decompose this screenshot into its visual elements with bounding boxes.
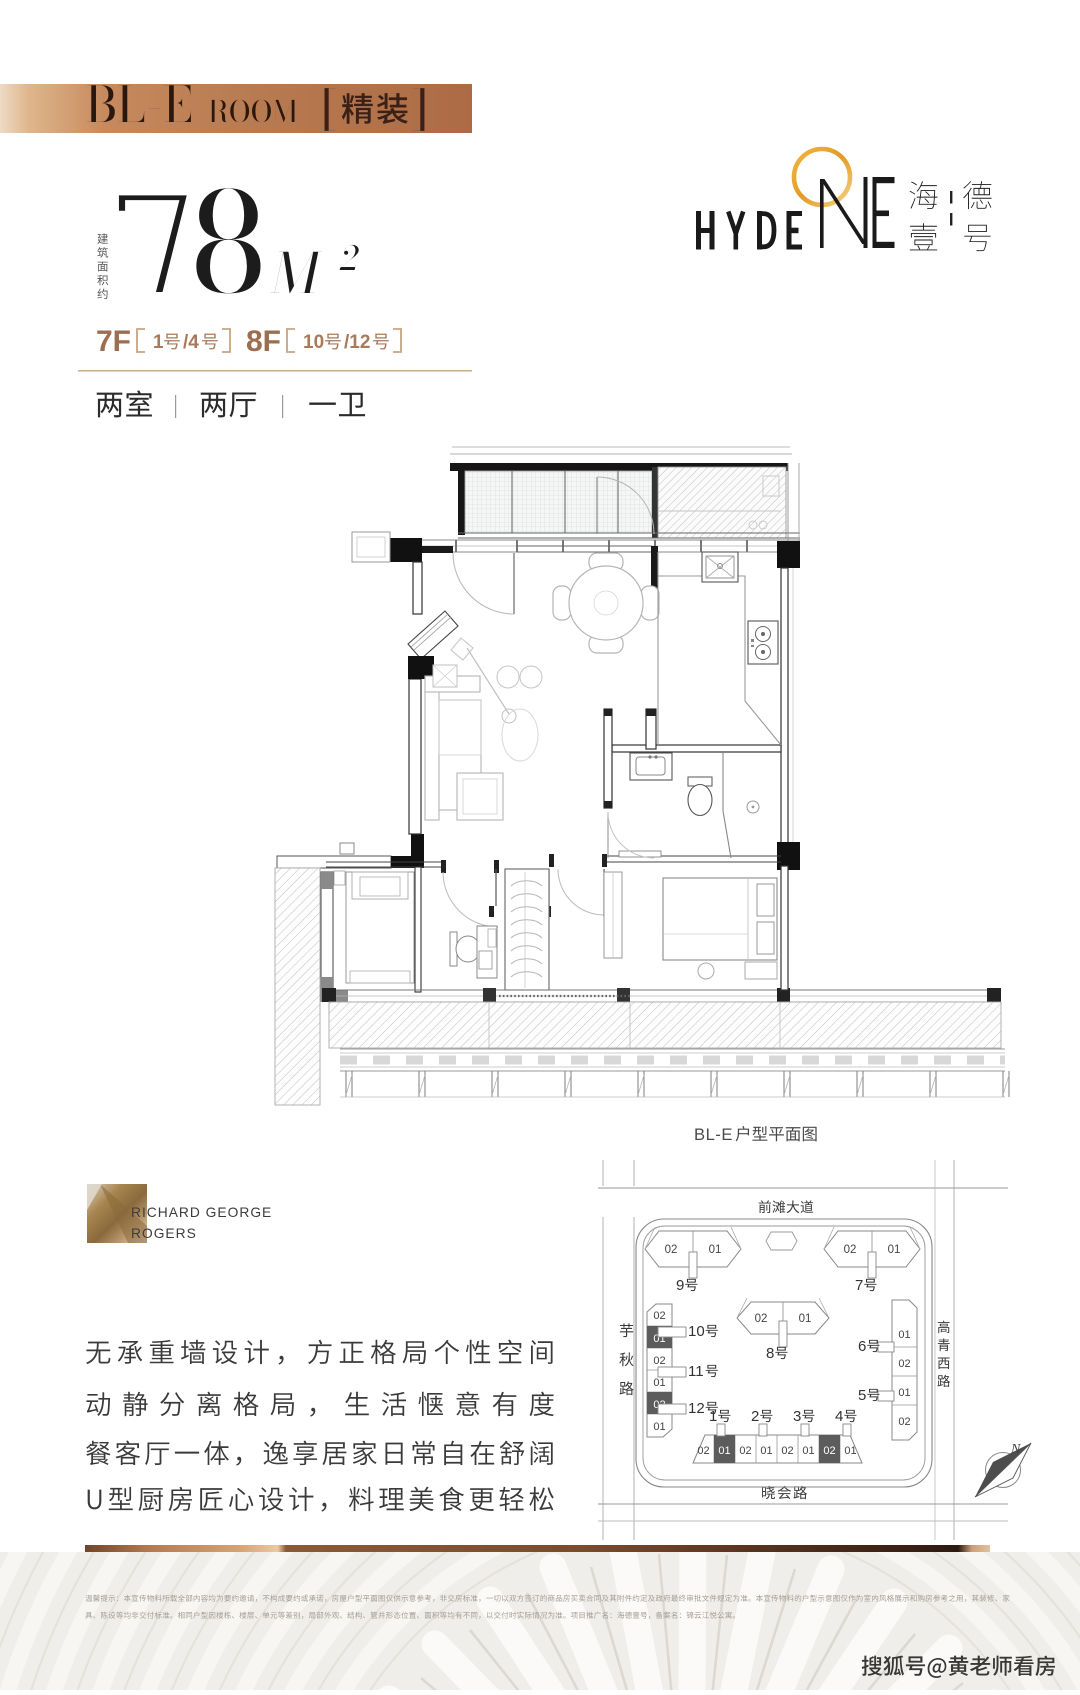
svg-text:02: 02 — [823, 1445, 835, 1457]
svg-text:01: 01 — [653, 1377, 665, 1389]
svg-text:01: 01 — [760, 1445, 772, 1457]
svg-text:01: 01 — [888, 1244, 901, 1256]
svg-text:02: 02 — [844, 1244, 857, 1256]
svg-text:01: 01 — [709, 1244, 722, 1256]
svg-text:02: 02 — [653, 1310, 665, 1322]
svg-text:01: 01 — [844, 1445, 856, 1457]
svg-text:RICHARD GEORGE: RICHARD GEORGE — [131, 1205, 272, 1220]
svg-text:01: 01 — [653, 1421, 665, 1433]
svg-text:8: 8 — [766, 1345, 774, 1362]
svg-text:12: 12 — [688, 1400, 705, 1417]
svg-text:11: 11 — [688, 1363, 704, 1380]
svg-text:9: 9 — [676, 1277, 684, 1294]
svg-text:02: 02 — [653, 1355, 665, 1367]
svg-text:/4: /4 — [183, 332, 199, 353]
svg-text:02: 02 — [665, 1244, 678, 1256]
svg-text:01: 01 — [799, 1313, 812, 1325]
svg-text:1: 1 — [709, 1408, 717, 1425]
svg-text:N: N — [1010, 1442, 1021, 1457]
svg-text:7F: 7F — [96, 325, 131, 358]
svg-text:2: 2 — [751, 1408, 759, 1425]
svg-text:7: 7 — [855, 1277, 863, 1294]
svg-text:02: 02 — [755, 1313, 768, 1325]
svg-text:01: 01 — [718, 1445, 730, 1457]
svg-text:ROGERS: ROGERS — [131, 1226, 197, 1241]
svg-text:10: 10 — [303, 332, 324, 353]
svg-text:02: 02 — [781, 1445, 793, 1457]
svg-text:02: 02 — [739, 1445, 751, 1457]
svg-text:02: 02 — [898, 1358, 910, 1370]
svg-text:01: 01 — [898, 1387, 910, 1399]
svg-text:02: 02 — [697, 1445, 709, 1457]
svg-text:BL-E: BL-E — [694, 1125, 733, 1144]
svg-text:02: 02 — [898, 1416, 910, 1428]
svg-text:3: 3 — [793, 1408, 801, 1425]
svg-text:10: 10 — [688, 1323, 705, 1340]
svg-text:6: 6 — [858, 1338, 866, 1355]
svg-text:/12: /12 — [344, 332, 370, 353]
svg-text:8F: 8F — [246, 325, 281, 358]
svg-text:01: 01 — [802, 1445, 814, 1457]
svg-text:5: 5 — [858, 1387, 866, 1404]
svg-text:1: 1 — [153, 332, 164, 353]
svg-text:01: 01 — [898, 1329, 910, 1341]
svg-text:4: 4 — [835, 1408, 843, 1425]
